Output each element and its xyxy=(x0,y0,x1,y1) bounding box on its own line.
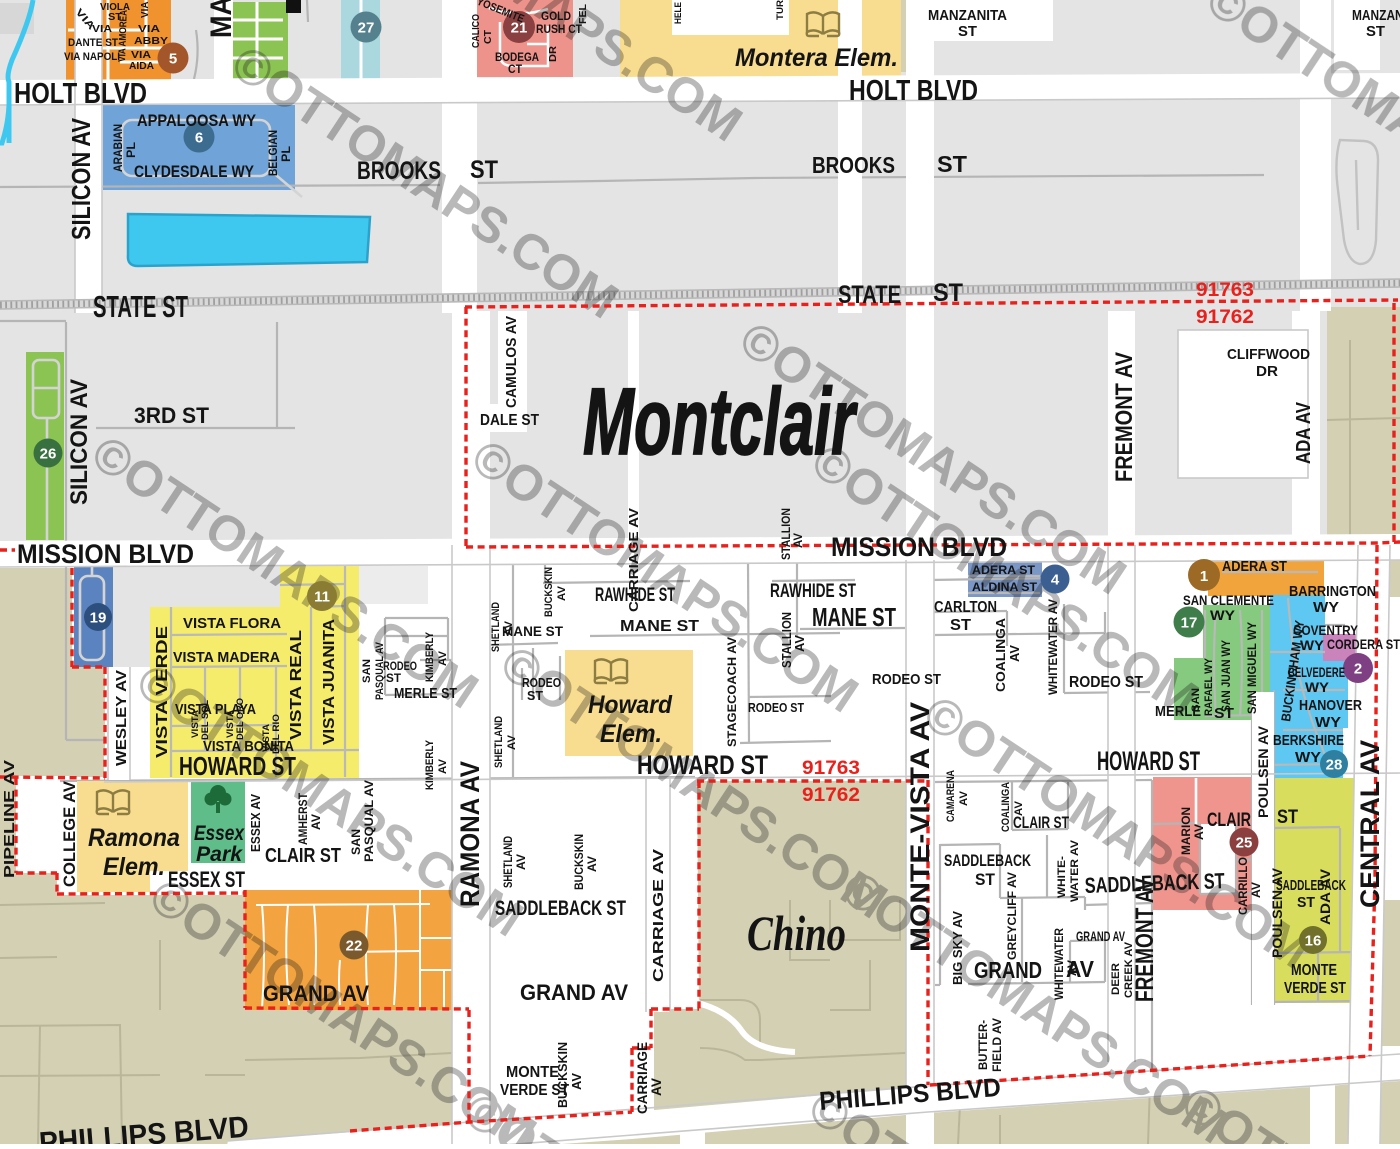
svg-text:AV: AV xyxy=(1013,800,1025,816)
svg-text:VIA NAPOLI: VIA NAPOLI xyxy=(64,51,120,63)
svg-text:MANZANITA: MANZANITA xyxy=(928,7,1007,24)
svg-text:WY: WY xyxy=(1210,607,1236,623)
svg-text:KIMBERLY: KIMBERLY xyxy=(424,631,436,682)
svg-text:ALDINA ST: ALDINA ST xyxy=(972,580,1038,594)
svg-text:AV: AV xyxy=(1007,645,1022,662)
svg-text:AV: AV xyxy=(1192,824,1206,840)
svg-text:SHETLAND: SHETLAND xyxy=(490,602,502,652)
svg-text:RAWHIDE ST: RAWHIDE ST xyxy=(770,581,856,602)
svg-text:FEL: FEL xyxy=(578,4,589,24)
svg-text:AV: AV xyxy=(556,585,568,601)
svg-text:25: 25 xyxy=(1236,835,1253,852)
svg-text:WY: WY xyxy=(1295,749,1321,766)
svg-text:ADA AV: ADA AV xyxy=(1317,868,1333,925)
svg-text:ADA AV: ADA AV xyxy=(1293,401,1315,464)
svg-text:22: 22 xyxy=(346,938,363,955)
svg-text:91763: 91763 xyxy=(1196,280,1254,301)
svg-text:SAN: SAN xyxy=(361,659,373,683)
svg-text:COALINGA: COALINGA xyxy=(1000,782,1012,832)
svg-text:CT: CT xyxy=(483,30,494,44)
svg-text:91763: 91763 xyxy=(802,758,860,779)
svg-text:VISTA MADERA: VISTA MADERA xyxy=(173,649,280,666)
svg-text:BERKSHIRE: BERKSHIRE xyxy=(1273,732,1344,749)
svg-text:SAN: SAN xyxy=(349,829,363,855)
svg-text:BELGIAN: BELGIAN xyxy=(266,130,280,176)
svg-text:SADDLEBACK: SADDLEBACK xyxy=(1276,877,1346,894)
svg-text:VISTA FLORA: VISTA FLORA xyxy=(183,615,281,632)
svg-text:CLIFFWOOD: CLIFFWOOD xyxy=(1227,346,1310,363)
svg-text:GRAND AV: GRAND AV xyxy=(263,981,369,1006)
svg-text:MARION: MARION xyxy=(1179,807,1193,855)
svg-text:VIA C: VIA C xyxy=(140,0,151,18)
svg-text:ADERA ST: ADERA ST xyxy=(1222,558,1287,575)
svg-text:Park: Park xyxy=(196,843,243,866)
svg-text:VISTA REAL: VISTA REAL xyxy=(288,630,305,740)
svg-text:MONTE-VISTA AV: MONTE-VISTA AV xyxy=(905,702,935,952)
svg-text:AIDA: AIDA xyxy=(129,61,154,72)
svg-text:91762: 91762 xyxy=(1196,307,1254,328)
svg-text:MONTE: MONTE xyxy=(1291,962,1337,979)
svg-text:SHETLAND: SHETLAND xyxy=(501,836,515,888)
svg-text:BARRINGTON: BARRINGTON xyxy=(1289,583,1376,600)
svg-text:ST: ST xyxy=(1366,23,1385,40)
svg-text:HANOVER: HANOVER xyxy=(1299,697,1362,714)
svg-text:WY: WY xyxy=(1313,599,1339,616)
svg-text:POULSEN AV: POULSEN AV xyxy=(1269,867,1285,958)
svg-text:DANTE ST: DANTE ST xyxy=(68,37,118,49)
svg-text:91762: 91762 xyxy=(802,785,860,806)
svg-text:16: 16 xyxy=(1305,933,1322,950)
svg-text:HOWARD ST: HOWARD ST xyxy=(1097,746,1200,776)
svg-text:VISTA VERDE: VISTA VERDE xyxy=(154,626,171,758)
svg-text:ST: ST xyxy=(950,617,971,634)
svg-text:AV: AV xyxy=(503,620,515,636)
svg-text:CLYDESDALE WY: CLYDESDALE WY xyxy=(134,162,255,181)
svg-text:DEL SOL: DEL SOL xyxy=(200,699,210,740)
svg-text:MISSION BLVD: MISSION BLVD xyxy=(17,539,194,569)
svg-text:SILICON AV: SILICON AV xyxy=(66,117,96,240)
svg-text:BUTTER-: BUTTER- xyxy=(976,1020,990,1070)
svg-text:WESLEY AV: WESLEY AV xyxy=(113,670,130,766)
svg-text:CARRIAGE AV: CARRIAGE AV xyxy=(650,849,667,982)
svg-text:ST: ST xyxy=(937,151,967,177)
svg-text:Montclair: Montclair xyxy=(583,369,858,475)
svg-text:RODEO ST: RODEO ST xyxy=(1069,674,1143,691)
svg-text:CARRILLO: CARRILLO xyxy=(1236,857,1250,915)
svg-text:VISTA JUANITA: VISTA JUANITA xyxy=(321,619,338,745)
svg-text:PASQUAL AV: PASQUAL AV xyxy=(362,780,376,862)
svg-text:HOLT BLVD: HOLT BLVD xyxy=(849,75,978,107)
svg-text:POULSEN AV: POULSEN AV xyxy=(1255,725,1271,818)
svg-text:FIELD AV: FIELD AV xyxy=(990,1018,1004,1072)
svg-text:ABBY: ABBY xyxy=(134,36,168,47)
svg-text:VISTA: VISTA xyxy=(261,723,271,752)
svg-text:27: 27 xyxy=(358,20,375,37)
svg-text:AV: AV xyxy=(958,790,970,806)
svg-text:1: 1 xyxy=(1200,568,1208,585)
svg-text:28: 28 xyxy=(1326,757,1343,774)
svg-text:VISTA: VISTA xyxy=(225,709,235,738)
svg-text:HELE: HELE xyxy=(673,2,683,24)
svg-text:CARLTON: CARLTON xyxy=(934,599,997,616)
svg-text:WHITEWATER: WHITEWATER xyxy=(1052,928,1066,1000)
svg-text:GRAND AV: GRAND AV xyxy=(520,980,628,1005)
svg-text:PASQUAL AV: PASQUAL AV xyxy=(374,641,386,700)
svg-text:CLAIR ST: CLAIR ST xyxy=(265,845,341,867)
svg-text:WY: WY xyxy=(1305,679,1330,695)
svg-text:COLLEGE AV: COLLEGE AV xyxy=(60,780,79,887)
svg-text:Essex: Essex xyxy=(194,822,245,845)
svg-text:RODEO ST: RODEO ST xyxy=(872,671,941,688)
svg-text:BROOKS: BROOKS xyxy=(357,157,441,185)
svg-text:AMHERST: AMHERST xyxy=(296,792,310,845)
svg-text:MA: MA xyxy=(205,0,238,38)
svg-text:ARABIAN: ARABIAN xyxy=(111,124,125,172)
svg-text:AV: AV xyxy=(506,734,518,750)
svg-text:RAFAEL WY: RAFAEL WY xyxy=(1203,657,1215,716)
svg-text:CREEK AV: CREEK AV xyxy=(1123,941,1135,998)
svg-text:CARRIAGE: CARRIAGE xyxy=(634,1042,650,1114)
svg-text:CAMARENA: CAMARENA xyxy=(945,770,957,822)
svg-text:ESSEX AV: ESSEX AV xyxy=(248,794,263,852)
svg-text:2: 2 xyxy=(1354,661,1362,678)
svg-text:MANE ST: MANE ST xyxy=(812,602,896,632)
svg-text:GRAND AV: GRAND AV xyxy=(1076,928,1125,944)
svg-text:MANZANITA: MANZANITA xyxy=(1352,7,1400,24)
svg-text:VIA: VIA xyxy=(131,50,151,61)
svg-text:11: 11 xyxy=(314,589,330,606)
svg-text:AV: AV xyxy=(1249,882,1263,898)
svg-text:Chino: Chino xyxy=(747,905,846,961)
svg-text:STATE: STATE xyxy=(838,281,901,309)
svg-text:DR: DR xyxy=(548,45,559,62)
svg-text:ST: ST xyxy=(470,156,498,184)
svg-text:BIG SKY AV: BIG SKY AV xyxy=(950,911,965,985)
svg-text:VIA: VIA xyxy=(138,24,160,35)
svg-text:PL: PL xyxy=(279,146,293,162)
svg-text:AV: AV xyxy=(792,635,807,652)
svg-text:ESSEX ST: ESSEX ST xyxy=(168,867,245,892)
svg-text:CT: CT xyxy=(508,62,523,76)
svg-text:ST: ST xyxy=(1277,807,1298,828)
svg-text:MISSION BLVD: MISSION BLVD xyxy=(831,532,1007,562)
svg-text:4: 4 xyxy=(1051,572,1060,589)
svg-text:MONTE: MONTE xyxy=(506,1064,559,1081)
svg-text:26: 26 xyxy=(40,446,57,463)
svg-text:CLAIR: CLAIR xyxy=(1207,810,1251,831)
svg-text:CORDERA ST: CORDERA ST xyxy=(1327,636,1400,652)
svg-text:MANE ST: MANE ST xyxy=(620,618,699,635)
svg-text:HOWARD ST: HOWARD ST xyxy=(637,750,768,780)
svg-text:DEL RIO: DEL RIO xyxy=(271,714,281,754)
svg-text:AV: AV xyxy=(437,650,449,666)
svg-text:FREMONT AV: FREMONT AV xyxy=(1131,878,1159,1002)
svg-text:CENTRAL AV: CENTRAL AV xyxy=(1355,740,1385,908)
svg-text:GOLD: GOLD xyxy=(541,9,571,23)
svg-text:6: 6 xyxy=(195,130,203,147)
svg-text:AV: AV xyxy=(1065,960,1079,976)
svg-text:SADDLEBACK ST: SADDLEBACK ST xyxy=(495,897,626,920)
svg-text:DEER: DEER xyxy=(1110,963,1122,995)
svg-text:PIPELINE AV: PIPELINE AV xyxy=(1,760,18,878)
svg-text:RAMONA AV: RAMONA AV xyxy=(455,761,485,907)
svg-text:DEL ORO: DEL ORO xyxy=(235,698,245,740)
svg-text:BUCKSKIN: BUCKSKIN xyxy=(543,567,555,617)
svg-text:17: 17 xyxy=(1181,615,1198,632)
svg-text:CAMULOS AV: CAMULOS AV xyxy=(503,316,520,408)
svg-text:AV: AV xyxy=(437,758,449,774)
svg-text:ST: ST xyxy=(933,279,963,307)
svg-text:ST: ST xyxy=(1297,894,1315,911)
svg-text:RUSH CT: RUSH CT xyxy=(536,22,583,36)
svg-text:AV: AV xyxy=(791,533,805,548)
svg-text:AV: AV xyxy=(648,1077,664,1096)
svg-text:Elem.: Elem. xyxy=(103,853,165,881)
svg-text:WATER AV: WATER AV xyxy=(1069,839,1081,902)
svg-text:GREYCLIFF AV: GREYCLIFF AV xyxy=(1005,872,1019,960)
svg-text:SILICON AV: SILICON AV xyxy=(66,379,93,505)
svg-text:ST: ST xyxy=(386,671,402,685)
svg-text:WY: WY xyxy=(1315,714,1341,731)
svg-text:ST: ST xyxy=(975,870,996,889)
svg-text:FREMONT AV: FREMONT AV xyxy=(1111,352,1138,482)
svg-text:BUCKSKIN: BUCKSKIN xyxy=(555,1042,570,1108)
svg-text:ADERA ST: ADERA ST xyxy=(972,563,1036,577)
svg-text:SADDLEBACK: SADDLEBACK xyxy=(944,851,1032,870)
svg-text:Elem.: Elem. xyxy=(600,720,662,748)
svg-text:KIMBERLY: KIMBERLY xyxy=(424,739,436,790)
svg-text:SAN JUAN WY: SAN JUAN WY xyxy=(1219,640,1233,712)
svg-text:AV: AV xyxy=(309,814,323,830)
svg-text:RODEO ST: RODEO ST xyxy=(748,700,804,715)
svg-text:TUR: TUR xyxy=(775,0,785,20)
svg-text:STAGECOACH AV: STAGECOACH AV xyxy=(725,637,739,747)
svg-text:COALINGA: COALINGA xyxy=(993,617,1008,692)
svg-text:WHITE-: WHITE- xyxy=(1056,856,1068,898)
svg-text:5: 5 xyxy=(169,51,177,68)
svg-text:ST: ST xyxy=(958,23,977,40)
svg-text:WHITEWATER AV: WHITEWATER AV xyxy=(1046,599,1060,695)
svg-text:SAN CLEMENTE: SAN CLEMENTE xyxy=(1183,592,1274,608)
svg-text:VISTA: VISTA xyxy=(190,709,200,738)
svg-text:MERLE ST: MERLE ST xyxy=(394,685,457,702)
svg-text:Ramona: Ramona xyxy=(88,824,180,852)
svg-text:DALE ST: DALE ST xyxy=(480,412,539,429)
svg-text:Montera Elem.: Montera Elem. xyxy=(735,44,898,72)
svg-text:PL: PL xyxy=(124,142,138,158)
svg-text:CALICO: CALICO xyxy=(471,14,482,48)
svg-text:AV: AV xyxy=(585,856,599,872)
svg-text:19: 19 xyxy=(90,610,107,627)
svg-text:SAN: SAN xyxy=(1190,688,1202,712)
svg-text:SHETLAND: SHETLAND xyxy=(493,716,505,768)
svg-text:APPALOOSA WY: APPALOOSA WY xyxy=(137,111,257,130)
svg-text:AV: AV xyxy=(569,1073,584,1090)
svg-text:SAN MIGUEL WY: SAN MIGUEL WY xyxy=(1245,622,1259,714)
svg-text:3RD ST: 3RD ST xyxy=(134,403,210,428)
svg-text:Howard: Howard xyxy=(588,691,673,719)
svg-text:HOLT BLVD: HOLT BLVD xyxy=(14,78,147,110)
svg-text:AV: AV xyxy=(514,854,528,870)
svg-text:STATE ST: STATE ST xyxy=(93,289,188,324)
svg-text:VIA AMOREA: VIA AMOREA xyxy=(117,10,130,62)
svg-text:DR: DR xyxy=(1256,363,1278,380)
svg-text:CARRIAGE AV: CARRIAGE AV xyxy=(626,508,641,612)
svg-text:HOWARD ST: HOWARD ST xyxy=(179,751,296,781)
svg-text:BUCKSKIN: BUCKSKIN xyxy=(572,834,586,890)
svg-text:VERDE ST: VERDE ST xyxy=(1284,980,1346,997)
svg-text:ST: ST xyxy=(527,688,543,703)
svg-text:BROOKS: BROOKS xyxy=(812,152,895,178)
